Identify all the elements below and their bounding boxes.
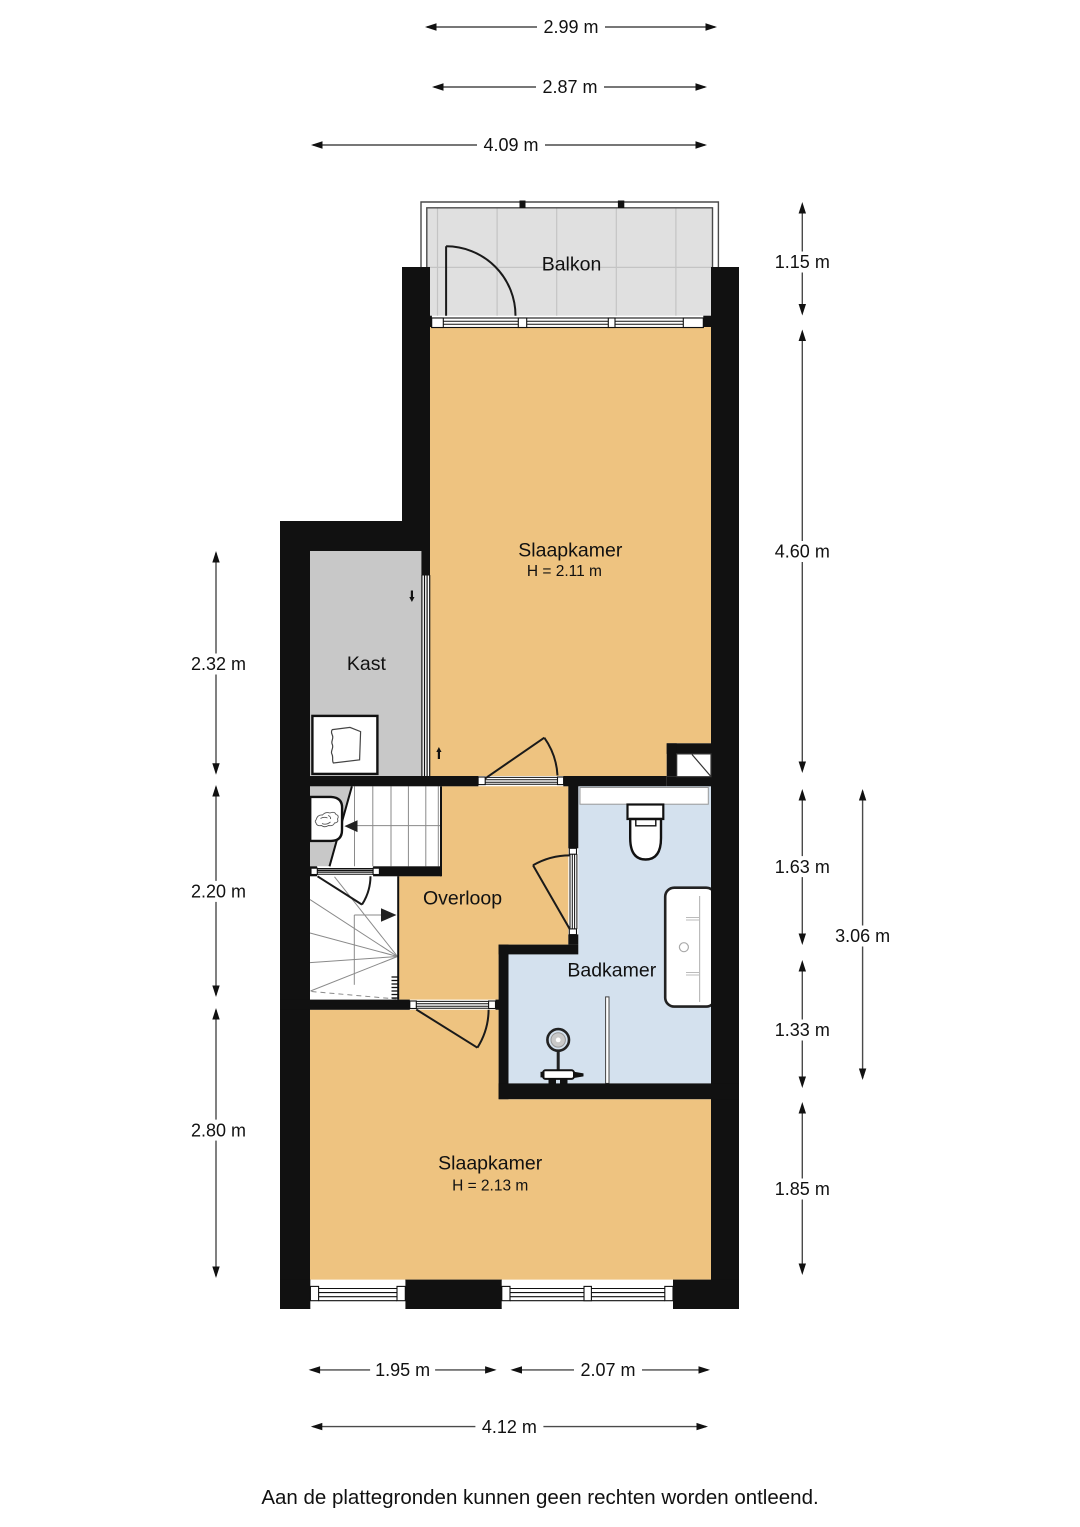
svg-text:2.80 m: 2.80 m [191,1120,246,1140]
svg-text:1.85 m: 1.85 m [775,1179,830,1199]
svg-text:2.32 m: 2.32 m [191,654,246,674]
svg-text:3.06 m: 3.06 m [835,926,890,946]
svg-text:Badkamer: Badkamer [567,960,656,982]
svg-text:2.07 m: 2.07 m [580,1360,635,1380]
svg-text:4.09 m: 4.09 m [483,135,538,155]
svg-text:Aan de plattegronden kunnen ge: Aan de plattegronden kunnen geen rechten… [261,1486,818,1509]
svg-text:Overloop: Overloop [423,888,502,910]
svg-text:1.63 m: 1.63 m [775,857,830,877]
svg-text:2.99 m: 2.99 m [543,17,598,37]
svg-text:H = 2.11 m: H = 2.11 m [527,563,602,580]
svg-text:2.87 m: 2.87 m [542,77,597,97]
svg-text:1.33 m: 1.33 m [775,1020,830,1040]
svg-text:4.60 m: 4.60 m [775,542,830,562]
svg-text:1.15 m: 1.15 m [775,252,830,272]
svg-text:Balkon: Balkon [542,254,602,276]
svg-text:Kast: Kast [347,653,387,675]
svg-text:H = 2.13 m: H = 2.13 m [452,1178,528,1195]
svg-text:Slaapkamer: Slaapkamer [518,540,623,562]
svg-text:1.95 m: 1.95 m [375,1360,430,1380]
svg-text:4.12 m: 4.12 m [482,1417,537,1437]
svg-text:Slaapkamer: Slaapkamer [438,1153,543,1175]
svg-text:2.20 m: 2.20 m [191,882,246,902]
